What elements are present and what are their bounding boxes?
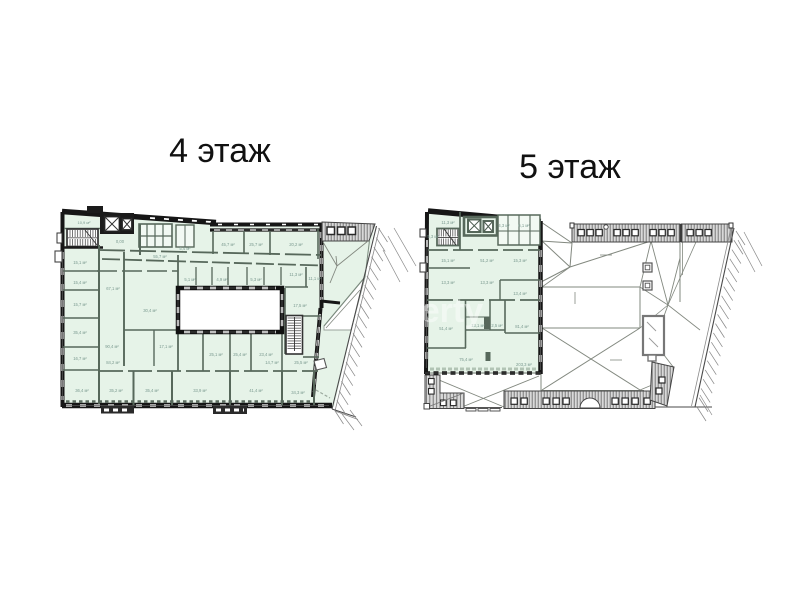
- svg-text:6,1 м²: 6,1 м²: [518, 223, 530, 228]
- svg-text:23,4 м²: 23,4 м²: [259, 352, 273, 357]
- svg-text:11,3 м²: 11,3 м²: [441, 220, 455, 225]
- svg-text:20,2 м²: 20,2 м²: [289, 242, 303, 247]
- svg-text:17,5 м²: 17,5 м²: [293, 303, 307, 308]
- svg-text:35,4 м²: 35,4 м²: [145, 388, 159, 393]
- svg-text:33,9 м²: 33,9 м²: [193, 388, 207, 393]
- svg-text:34,3 м²: 34,3 м²: [291, 390, 305, 395]
- svg-text:11,1 м²: 11,1 м²: [308, 276, 322, 281]
- svg-text:11,3 м²: 11,3 м²: [289, 272, 303, 277]
- svg-text:15,7 м²: 15,7 м²: [73, 302, 87, 307]
- svg-text:15,1 м²: 15,1 м²: [73, 260, 87, 265]
- svg-text:perty: perty: [400, 292, 483, 330]
- svg-text:35,4 м²: 35,4 м²: [73, 330, 87, 335]
- svg-text:25,4 м²: 25,4 м²: [233, 352, 247, 357]
- svg-text:2,5 м²: 2,5 м²: [491, 323, 503, 328]
- svg-text:45,7 м²: 45,7 м²: [221, 242, 235, 247]
- svg-text:25,7 м²: 25,7 м²: [249, 242, 263, 247]
- svg-text:51,2 м²: 51,2 м²: [480, 258, 494, 263]
- svg-text:15,4 м²: 15,4 м²: [73, 280, 87, 285]
- svg-text:10,9 м²: 10,9 м²: [78, 220, 92, 225]
- svg-text:55,7 м²: 55,7 м²: [153, 254, 167, 259]
- svg-text:36,4 м²: 36,4 м²: [75, 388, 89, 393]
- svg-text:14,7 м²: 14,7 м²: [265, 360, 279, 365]
- svg-text:25,1 м²: 25,1 м²: [209, 352, 223, 357]
- svg-text:67,1 м²: 67,1 м²: [106, 286, 120, 291]
- svg-text:4,9 м²: 4,9 м²: [216, 277, 228, 282]
- svg-text:4,3 м²: 4,3 м²: [498, 223, 510, 228]
- svg-text:203,3 м²: 203,3 м²: [516, 362, 533, 367]
- svg-text:41,4 м²: 41,4 м²: [249, 388, 263, 393]
- svg-text:0,00: 0,00: [116, 239, 125, 244]
- svg-text:5,4 м²: 5,4 м²: [179, 246, 191, 251]
- svg-text:17,1 м²: 17,1 м²: [159, 344, 173, 349]
- svg-text:13,3 м²: 13,3 м²: [441, 280, 455, 285]
- svg-text:75,4 м²: 75,4 м²: [459, 357, 473, 362]
- svg-text:5,1 м²: 5,1 м²: [184, 277, 196, 282]
- svg-text:35,2 м²: 35,2 м²: [109, 388, 123, 393]
- svg-text:5,3 м²: 5,3 м²: [250, 277, 262, 282]
- svg-text:30,4 м²: 30,4 м²: [143, 308, 157, 313]
- svg-text:90,4 м²: 90,4 м²: [105, 344, 119, 349]
- svg-text:5 этаж: 5 этаж: [519, 148, 621, 186]
- svg-text:13,3 м²: 13,3 м²: [480, 280, 494, 285]
- svg-text:25,5 м²: 25,5 м²: [294, 360, 308, 365]
- svg-text:84,2 м²: 84,2 м²: [106, 360, 120, 365]
- svg-text:15,1 м²: 15,1 м²: [441, 258, 455, 263]
- svg-text:13,4 м²: 13,4 м²: [513, 291, 527, 296]
- svg-text:4 этаж: 4 этаж: [169, 132, 271, 170]
- svg-text:15,3 м²: 15,3 м²: [513, 258, 527, 263]
- svg-text:5,3 м²: 5,3 м²: [427, 234, 439, 239]
- svg-text:81,4 м²: 81,4 м²: [515, 324, 529, 329]
- svg-text:16,7 м²: 16,7 м²: [73, 356, 87, 361]
